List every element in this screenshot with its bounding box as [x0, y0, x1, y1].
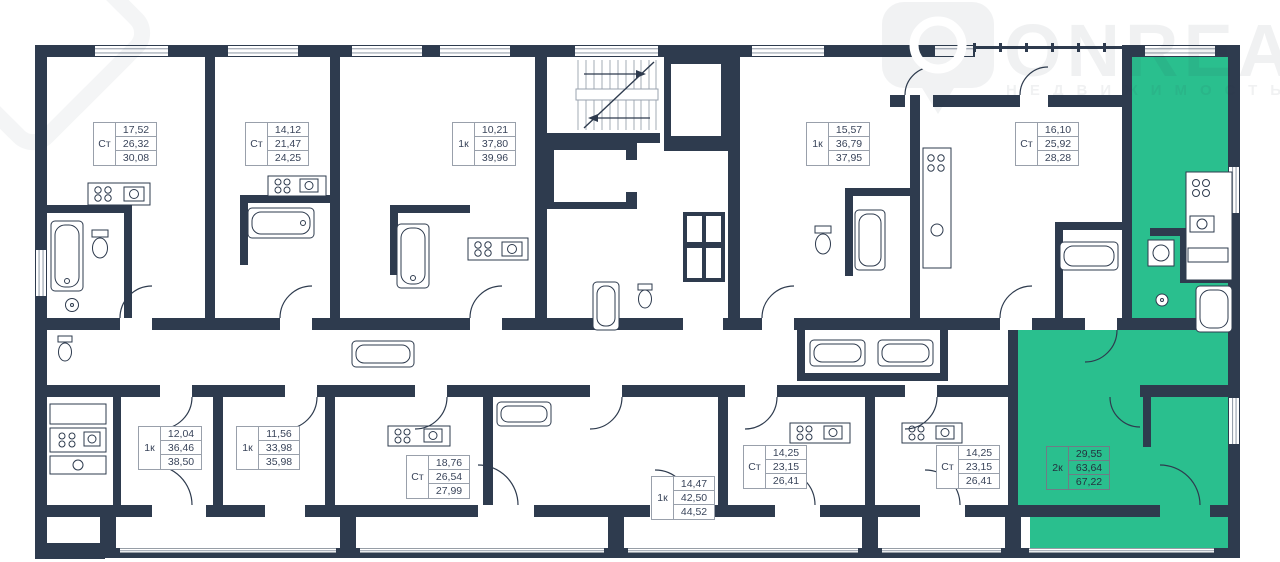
stove-icon: [468, 238, 528, 260]
apartment-type: 1к: [237, 427, 259, 469]
toilet-icon: [815, 226, 831, 254]
apartment-type: 1к: [139, 427, 161, 469]
elevator-icon: [547, 143, 637, 209]
stove-icon: [268, 176, 326, 196]
sink-icon: [1156, 294, 1168, 306]
area-value: 14,25: [766, 446, 806, 460]
apartment-label-1[interactable]: Ст 17,52 26,32 30,08: [93, 122, 157, 166]
bathtub-icon: [593, 282, 619, 330]
area-value: 26,32: [116, 137, 156, 151]
bathtub-icon: [51, 221, 83, 291]
apartment-label-2[interactable]: Ст 14,12 21,47 24,25: [245, 122, 309, 166]
area-value: 37,95: [829, 151, 869, 165]
area-value: 29,55: [1069, 447, 1109, 461]
area-value: 26,41: [959, 474, 999, 488]
area-value: 14,25: [959, 446, 999, 460]
apartment-label-4[interactable]: 1к 15,57 36,79 37,95: [806, 122, 870, 166]
stove-icon: [88, 183, 150, 205]
apartment-type: 2к: [1047, 447, 1069, 489]
stove-icon: [790, 423, 850, 443]
area-value: 21,47: [268, 137, 308, 151]
shaft-icon: [664, 57, 728, 151]
area-value: 16,10: [1038, 123, 1078, 137]
bathtub-icon: [497, 402, 551, 426]
area-value: 27,99: [429, 484, 469, 498]
area-value: 24,25: [268, 151, 308, 165]
area-value: 14,12: [268, 123, 308, 137]
bathtub-icon: [1196, 286, 1232, 332]
area-value: 67,22: [1069, 475, 1109, 489]
area-value: 30,08: [116, 151, 156, 165]
apartment-type: Ст: [246, 123, 268, 165]
washing-machine-icon: [1148, 240, 1174, 266]
area-value: 42,50: [674, 491, 714, 505]
apartment-type: Ст: [407, 456, 429, 498]
area-value: 38,50: [161, 455, 201, 469]
bathtub-icon: [352, 341, 414, 367]
apartment-label-12-selected[interactable]: 2к 29,55 63,64 67,22: [1046, 446, 1110, 490]
area-value: 25,92: [1038, 137, 1078, 151]
area-value: 26,54: [429, 470, 469, 484]
stairs-icon: [576, 60, 658, 130]
area-value: 10,21: [475, 123, 515, 137]
area-value: 12,04: [161, 427, 201, 441]
area-value: 28,28: [1038, 151, 1078, 165]
area-value: 35,98: [259, 455, 299, 469]
apartment-type: Ст: [937, 446, 959, 488]
apartment-label-6[interactable]: 1к 12,04 36,46 38,50: [138, 426, 202, 470]
toilet-icon: [58, 336, 72, 361]
apartment-type: 1к: [807, 123, 829, 165]
area-value: 17,52: [116, 123, 156, 137]
sink-icon: [50, 456, 106, 474]
stove-icon: [902, 423, 962, 443]
apartment-label-9[interactable]: 1к 14,47 42,50 44,52: [651, 476, 715, 520]
apartment-type: Ст: [94, 123, 116, 165]
apartment-type: 1к: [652, 477, 674, 519]
area-value: 23,15: [959, 460, 999, 474]
toilet-icon: [92, 230, 108, 258]
area-value: 36,46: [161, 441, 201, 455]
glazed-partition-icon: [683, 212, 725, 282]
floor-plan-canvas: ONREALT НЕДВИЖИМОСТЬ Ст 17,52 26,32 30,0…: [0, 0, 1280, 562]
sink-icon: [66, 299, 79, 312]
apartment-label-3[interactable]: 1к 10,21 37,80 39,96: [452, 122, 516, 166]
stove-icon: [50, 428, 106, 452]
bathtub-icon: [878, 340, 933, 366]
apartment-label-8[interactable]: Ст 18,76 26,54 27,99: [406, 455, 470, 499]
bathtub-icon: [397, 224, 429, 288]
area-value: 23,15: [766, 460, 806, 474]
toilet-icon: [638, 284, 652, 308]
area-value: 15,57: [829, 123, 869, 137]
apartment-label-5[interactable]: Ст 16,10 25,92 28,28: [1015, 122, 1079, 166]
apartment-label-11[interactable]: Ст 14,25 23,15 26,41: [936, 445, 1000, 489]
area-value: 44,52: [674, 505, 714, 519]
bathtub-icon: [1060, 242, 1118, 270]
apartment-label-10[interactable]: Ст 14,25 23,15 26,41: [743, 445, 807, 489]
area-value: 14,47: [674, 477, 714, 491]
bathtub-icon: [810, 340, 865, 366]
area-value: 37,80: [475, 137, 515, 151]
bathtub-icon: [248, 208, 314, 238]
area-value: 63,64: [1069, 461, 1109, 475]
bathtub-icon: [855, 210, 885, 270]
area-value: 11,56: [259, 427, 299, 441]
fridge-icon: [50, 404, 106, 424]
area-value: 26,41: [766, 474, 806, 488]
area-value: 39,96: [475, 151, 515, 165]
apartment-label-7[interactable]: 1к 11,56 33,98 35,98: [236, 426, 300, 470]
area-value: 33,98: [259, 441, 299, 455]
area-value: 18,76: [429, 456, 469, 470]
apartment-type: Ст: [1016, 123, 1038, 165]
kitchen-counter-icon: [1186, 172, 1232, 280]
kitchen-counter-icon: [923, 148, 951, 268]
apartment-type: Ст: [744, 446, 766, 488]
area-value: 36,79: [829, 137, 869, 151]
apartment-type: 1к: [453, 123, 475, 165]
